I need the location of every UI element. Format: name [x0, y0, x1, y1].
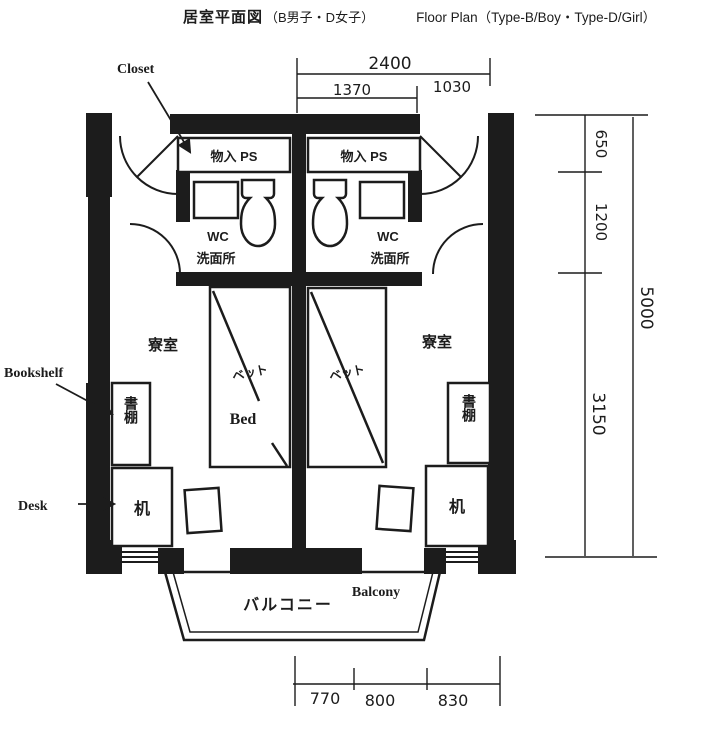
callout-closet: Closet — [117, 62, 155, 77]
washroom-right-label: 洗面所 — [370, 251, 409, 266]
desk-left-label: 机 — [134, 499, 150, 518]
desk-right-label: 机 — [449, 497, 465, 516]
wall-segment — [230, 548, 362, 574]
washroom-left-label: 洗面所 — [196, 251, 235, 266]
wall-segment — [306, 272, 422, 286]
bookshelf-left-label: 書棚 — [123, 395, 139, 425]
page-title: 居室平面図（B男子・D女子）Floor Plan（Type-B/Boy・Type… — [183, 6, 656, 27]
wall-segment — [158, 548, 184, 574]
door-arc-wc-left — [130, 224, 180, 274]
balcony-jp-label: バルコニー — [243, 596, 333, 614]
dim-top-seg1: 1370 — [333, 81, 371, 99]
callout-desk: Desk — [18, 499, 48, 514]
dim-right-seg2: 1200 — [592, 203, 610, 241]
floor-plan-drawing: 物入 PS 物入 PS WC WC 洗面所 洗面所 寮室 寮室 ベット ベット … — [0, 0, 711, 725]
floor-plan-page: 居室平面図（B男子・D女子）Floor Plan（Type-B/Boy・Type… — [0, 0, 711, 725]
door-leaf-entrance-left — [137, 136, 178, 177]
wall-segment — [176, 272, 292, 286]
toilet-icon-right — [313, 180, 347, 246]
storage-ps-right-label: 物入 PS — [341, 149, 388, 164]
wc-left-label: WC — [207, 229, 229, 244]
dim-top-seg2: 1030 — [433, 78, 471, 96]
dim-right-seg3: 3150 — [588, 392, 608, 435]
title-english: Floor Plan（Type-B/Boy・Type-D/Girl） — [416, 10, 656, 25]
toilet-icon-left — [241, 180, 275, 246]
chair-right — [377, 486, 414, 531]
wall-segment — [86, 113, 112, 197]
dim-top-overall: 2400 — [368, 54, 411, 74]
door-leaf-entrance-right — [420, 136, 461, 177]
wall-segment — [408, 170, 422, 222]
callout-bookshelf: Bookshelf — [4, 366, 63, 381]
dim-right-overall: 5000 — [636, 286, 656, 329]
bookshelf-right-label: 書棚 — [461, 393, 477, 423]
chair-left — [185, 488, 222, 533]
wall-segment — [424, 548, 446, 574]
storage-ps-left-label: 物入 PS — [211, 149, 258, 164]
wall-segment — [176, 170, 190, 222]
dim-right-seg1: 650 — [592, 130, 610, 159]
wall-segment — [88, 195, 110, 385]
bed-left-en-label: Bed — [230, 411, 257, 428]
dimension-lines-right — [535, 115, 657, 557]
dim-bottom-seg1: 770 — [310, 689, 341, 708]
wall-segment-center — [292, 114, 306, 572]
balcony-en-label: Balcony — [352, 585, 400, 600]
sink-right — [360, 182, 404, 218]
sink-left — [194, 182, 238, 218]
dim-bottom-seg2: 800 — [365, 691, 396, 710]
wc-right-label: WC — [377, 229, 399, 244]
room-left-label: 寮室 — [147, 336, 178, 354]
dim-bottom-seg3: 830 — [438, 691, 469, 710]
wall-segment — [488, 113, 514, 543]
door-arc-wc-right — [433, 224, 483, 274]
title-subtitle: （B男子・D女子） — [265, 10, 374, 25]
title-japanese: 居室平面図 — [183, 9, 263, 26]
room-right-label: 寮室 — [421, 333, 452, 351]
